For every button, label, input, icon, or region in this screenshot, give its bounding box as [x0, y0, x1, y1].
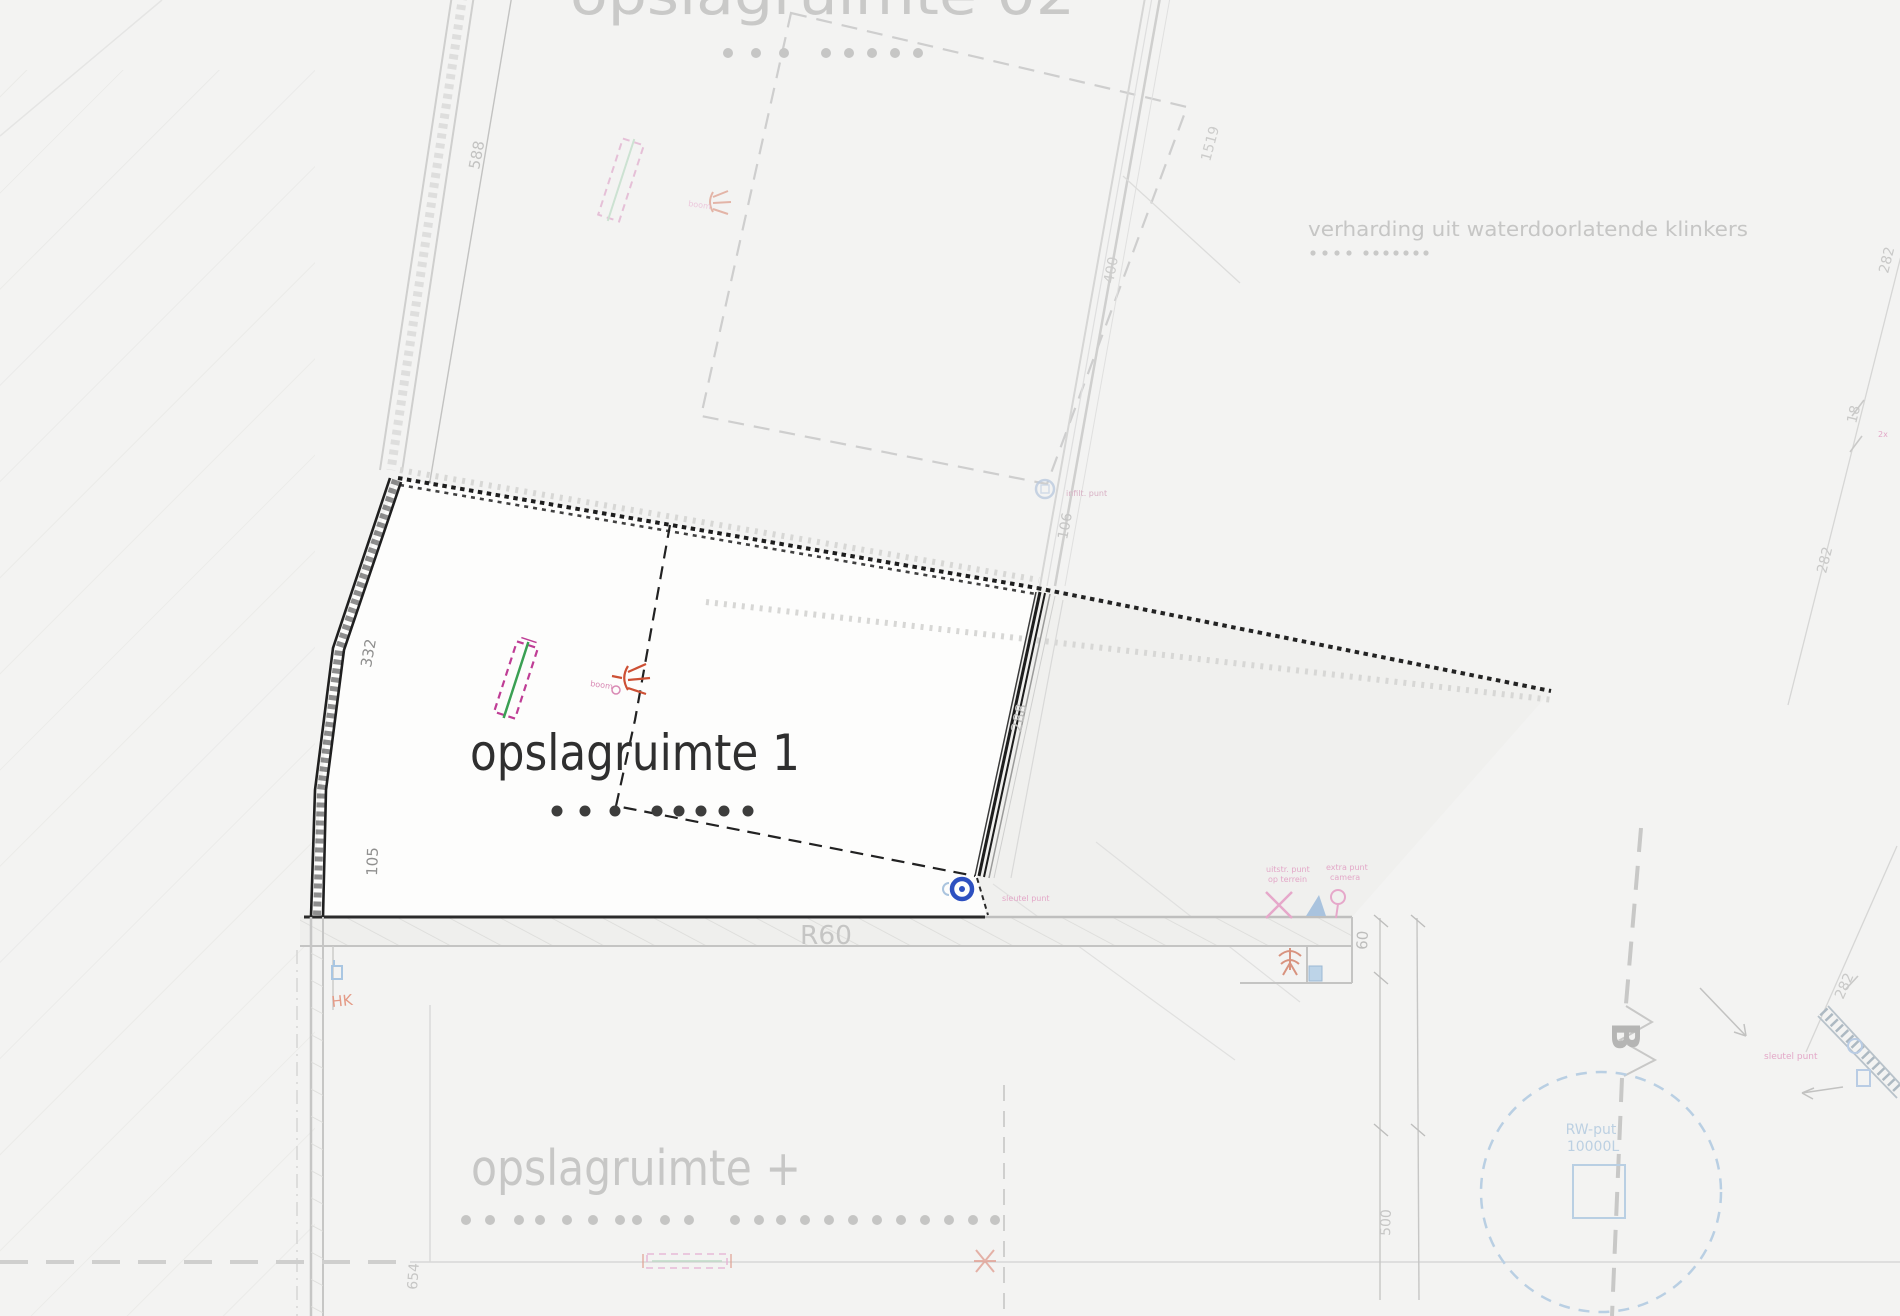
- boundary-dot: [610, 806, 621, 817]
- boundary-dot: [535, 1215, 545, 1225]
- tiny-annotation-label: sleutel punt: [1002, 894, 1050, 903]
- boundary-dot: [580, 806, 591, 817]
- storage1-title: opslagruimte 1: [470, 724, 800, 782]
- boundary-dot: [776, 1215, 786, 1225]
- boundary-dot: [588, 1215, 598, 1225]
- boundary-dot: [800, 1215, 810, 1225]
- tiny-annotation-label: 2x: [1878, 430, 1888, 439]
- boundary-dot: [684, 1215, 694, 1225]
- boundary-dot: [990, 1215, 1000, 1225]
- rw-put-label-line2: 10000L: [1567, 1139, 1620, 1155]
- dots-storage2: [723, 48, 923, 58]
- boundary-dot: [1346, 250, 1351, 255]
- tiny-annotation-label: camera: [1330, 873, 1360, 882]
- boundary-dot: [1322, 250, 1327, 255]
- boundary-dot: [913, 48, 923, 58]
- tiny-annotation-label: extra punt: [1326, 863, 1368, 872]
- boundary-dot: [723, 48, 733, 58]
- boundary-dot: [1383, 250, 1388, 255]
- boundary-dot: [896, 1215, 906, 1225]
- fire-rating-label: R60: [800, 921, 852, 951]
- storage-plus-title: opslagruimte +: [471, 1140, 801, 1197]
- dimension-label: 105: [363, 847, 382, 876]
- boundary-dot: [514, 1215, 524, 1225]
- boundary-dot: [890, 48, 900, 58]
- boundary-dot: [844, 48, 854, 58]
- tiny-annotation-label: op terrein: [1268, 875, 1307, 884]
- paving-note: verharding uit waterdoorlatende klinkers: [1308, 217, 1748, 241]
- boundary-dot: [652, 806, 663, 817]
- boundary-dot: [751, 48, 761, 58]
- boundary-dot: [1403, 250, 1408, 255]
- tiny-annotation-label: uitstr. punt: [1266, 865, 1310, 874]
- dimension-label: 654: [405, 1262, 423, 1290]
- boundary-dot: [920, 1215, 930, 1225]
- boundary-dot: [562, 1215, 572, 1225]
- boundary-dot: [552, 806, 563, 817]
- boundary-dot: [485, 1215, 495, 1225]
- boundary-dot: [461, 1215, 471, 1225]
- boundary-dot: [824, 1215, 834, 1225]
- dimension-label: 500: [1378, 1209, 1395, 1236]
- boundary-dot: [615, 1215, 625, 1225]
- left-terrain-hatch: [0, 0, 315, 1316]
- boundary-dot: [1373, 250, 1378, 255]
- boundary-dot: [743, 806, 754, 817]
- tiny-annotation-label: infilt. punt: [1066, 489, 1107, 498]
- boundary-dot: [968, 1215, 978, 1225]
- section-letter-b: B: [1603, 1022, 1647, 1051]
- boundary-dot: [821, 48, 831, 58]
- boundary-dot: [848, 1215, 858, 1225]
- site-plan-page: opslagruimte 02 opslagruimte 1 opslagrui…: [0, 0, 1900, 1316]
- boundary-dot: [696, 806, 707, 817]
- boundary-dot: [674, 806, 685, 817]
- site-plan-drawing: opslagruimte 02 opslagruimte 1 opslagrui…: [0, 0, 1900, 1316]
- boundary-dot: [1413, 250, 1418, 255]
- boundary-dot: [754, 1215, 764, 1225]
- boundary-dot: [944, 1215, 954, 1225]
- boundary-dot: [660, 1215, 670, 1225]
- dimension-label: 60: [1353, 930, 1372, 950]
- blue-square-icon: [1309, 966, 1322, 981]
- boundary-dot: [1393, 250, 1398, 255]
- boundary-dot: [872, 1215, 882, 1225]
- boundary-dot: [1334, 250, 1339, 255]
- boundary-dot: [730, 1215, 740, 1225]
- storage2-title: opslagruimte 02: [570, 0, 1075, 27]
- boundary-dot: [1310, 250, 1315, 255]
- tiny-annotation-label: HK: [331, 991, 355, 1011]
- boundary-dot: [719, 806, 730, 817]
- boundary-dot: [1363, 250, 1368, 255]
- tiny-annotation-label: sleutel punt: [1764, 1052, 1818, 1062]
- rw-put-label-line1: RW-put: [1566, 1122, 1617, 1138]
- boundary-dot: [867, 48, 877, 58]
- boundary-dot: [1423, 250, 1428, 255]
- boundary-dot: [632, 1215, 642, 1225]
- boundary-dot: [779, 48, 789, 58]
